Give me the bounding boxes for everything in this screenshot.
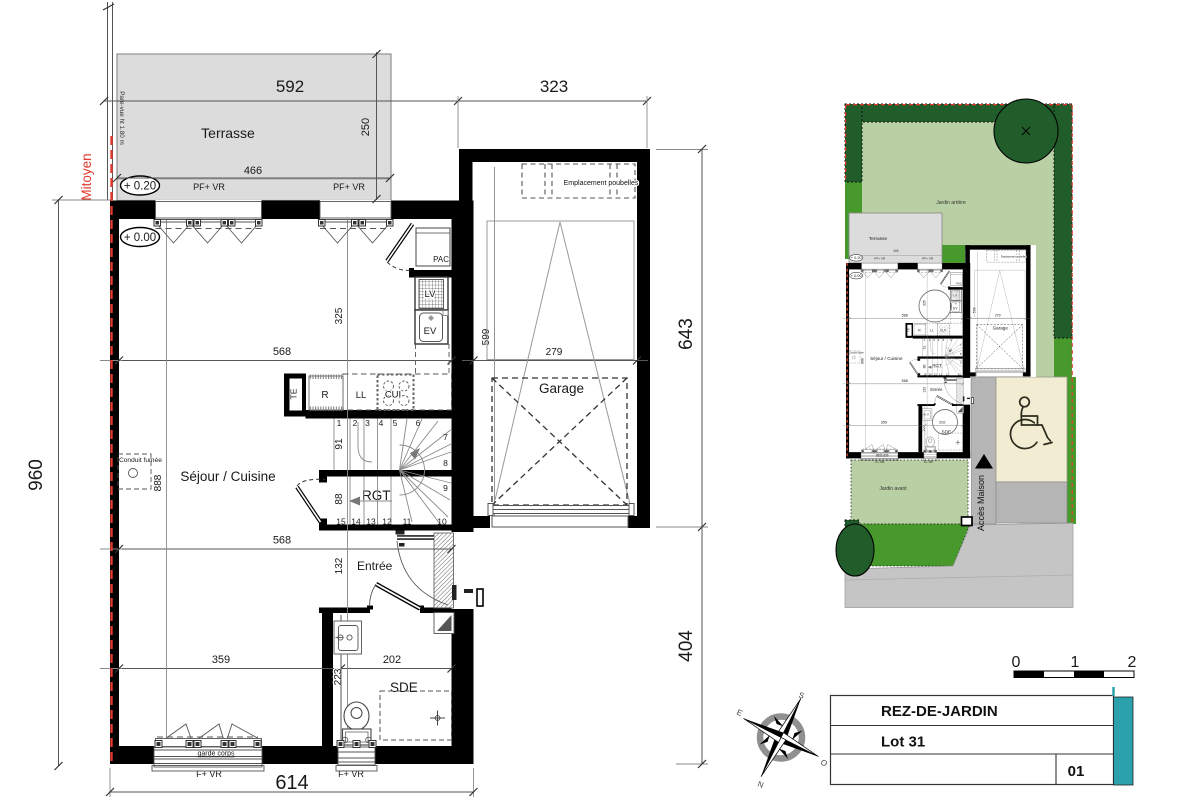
svg-text:Entrée: Entrée [357, 559, 393, 573]
svg-text:garde corps: garde corps [198, 751, 235, 758]
svg-text:PF+ VR: PF+ VR [333, 182, 365, 192]
svg-text:REZ-DE-JARDIN: REZ-DE-JARDIN [881, 703, 998, 720]
svg-text:643: 643 [676, 318, 697, 350]
svg-text:R: R [321, 390, 328, 401]
svg-text:8: 8 [443, 458, 448, 468]
svg-text:1: 1 [337, 418, 342, 428]
svg-text:2: 2 [353, 418, 358, 428]
svg-text:4: 4 [379, 418, 384, 428]
svg-text:132: 132 [334, 557, 345, 574]
svg-text:91: 91 [334, 438, 345, 450]
svg-text:202: 202 [383, 654, 401, 666]
svg-text:TE: TE [289, 388, 299, 399]
svg-text:LV: LV [425, 289, 437, 300]
svg-text:14: 14 [351, 517, 361, 527]
svg-text:+ 0.20: + 0.20 [124, 181, 156, 193]
svg-text:Emplacement poubelles: Emplacement poubelles [564, 180, 639, 187]
svg-text:279: 279 [546, 347, 563, 358]
svg-text:12: 12 [382, 517, 392, 527]
svg-text:Conduit fumée: Conduit fumée [119, 457, 162, 464]
svg-text:01: 01 [1068, 763, 1085, 780]
svg-text:EV: EV [424, 326, 437, 337]
svg-text:Accès Maison: Accès Maison [976, 475, 986, 531]
svg-text:15: 15 [336, 517, 346, 527]
svg-text:Jardin arrière: Jardin arrière [936, 200, 966, 206]
svg-text:7: 7 [443, 432, 448, 442]
svg-text:F+ VR: F+ VR [338, 769, 364, 779]
svg-text:592: 592 [276, 77, 304, 96]
svg-text:6: 6 [416, 418, 421, 428]
svg-text:1: 1 [1071, 654, 1080, 671]
svg-text:PAC: PAC [433, 255, 449, 264]
svg-text:568: 568 [273, 535, 291, 547]
svg-text:Jardin avant: Jardin avant [879, 486, 907, 492]
svg-text:614: 614 [275, 772, 308, 794]
svg-text:CUI: CUI [385, 390, 401, 401]
svg-text:323: 323 [540, 77, 568, 96]
svg-text:Séjour / Cuisine: Séjour / Cuisine [180, 469, 275, 484]
svg-text:Terrasse: Terrasse [201, 125, 255, 141]
svg-text:3: 3 [365, 418, 370, 428]
svg-text:88: 88 [334, 493, 345, 505]
svg-text:Mitoyen: Mitoyen [79, 153, 94, 200]
svg-text:404: 404 [676, 630, 697, 662]
svg-text:0: 0 [1012, 654, 1021, 671]
svg-text:9: 9 [443, 483, 448, 493]
svg-text:466: 466 [893, 249, 899, 253]
svg-text:5: 5 [393, 418, 398, 428]
svg-text:13: 13 [366, 517, 376, 527]
svg-text:960: 960 [26, 459, 47, 491]
svg-text:+ 0.00: + 0.00 [124, 232, 156, 244]
svg-text:SDE: SDE [390, 680, 418, 695]
svg-text:250: 250 [360, 118, 372, 136]
svg-text:466: 466 [244, 165, 262, 177]
svg-text:LL: LL [356, 390, 367, 401]
svg-text:Garage: Garage [539, 381, 584, 396]
svg-text:Lot 31: Lot 31 [881, 734, 925, 751]
svg-text:888: 888 [153, 474, 164, 491]
svg-text:11: 11 [403, 517, 412, 527]
svg-text:PF+ VR: PF+ VR [193, 182, 225, 192]
svg-text:568: 568 [273, 346, 291, 358]
svg-text:325: 325 [334, 307, 345, 324]
svg-text:F+ VR: F+ VR [196, 769, 222, 779]
svg-text:359: 359 [212, 654, 230, 666]
svg-text:Terrasse: Terrasse [869, 236, 888, 242]
svg-text:10: 10 [437, 517, 447, 527]
svg-text:Pare-vue ht 1.80 m: Pare-vue ht 1.80 m [118, 91, 125, 145]
svg-text:223: 223 [333, 668, 344, 685]
svg-text:2: 2 [1128, 654, 1137, 671]
